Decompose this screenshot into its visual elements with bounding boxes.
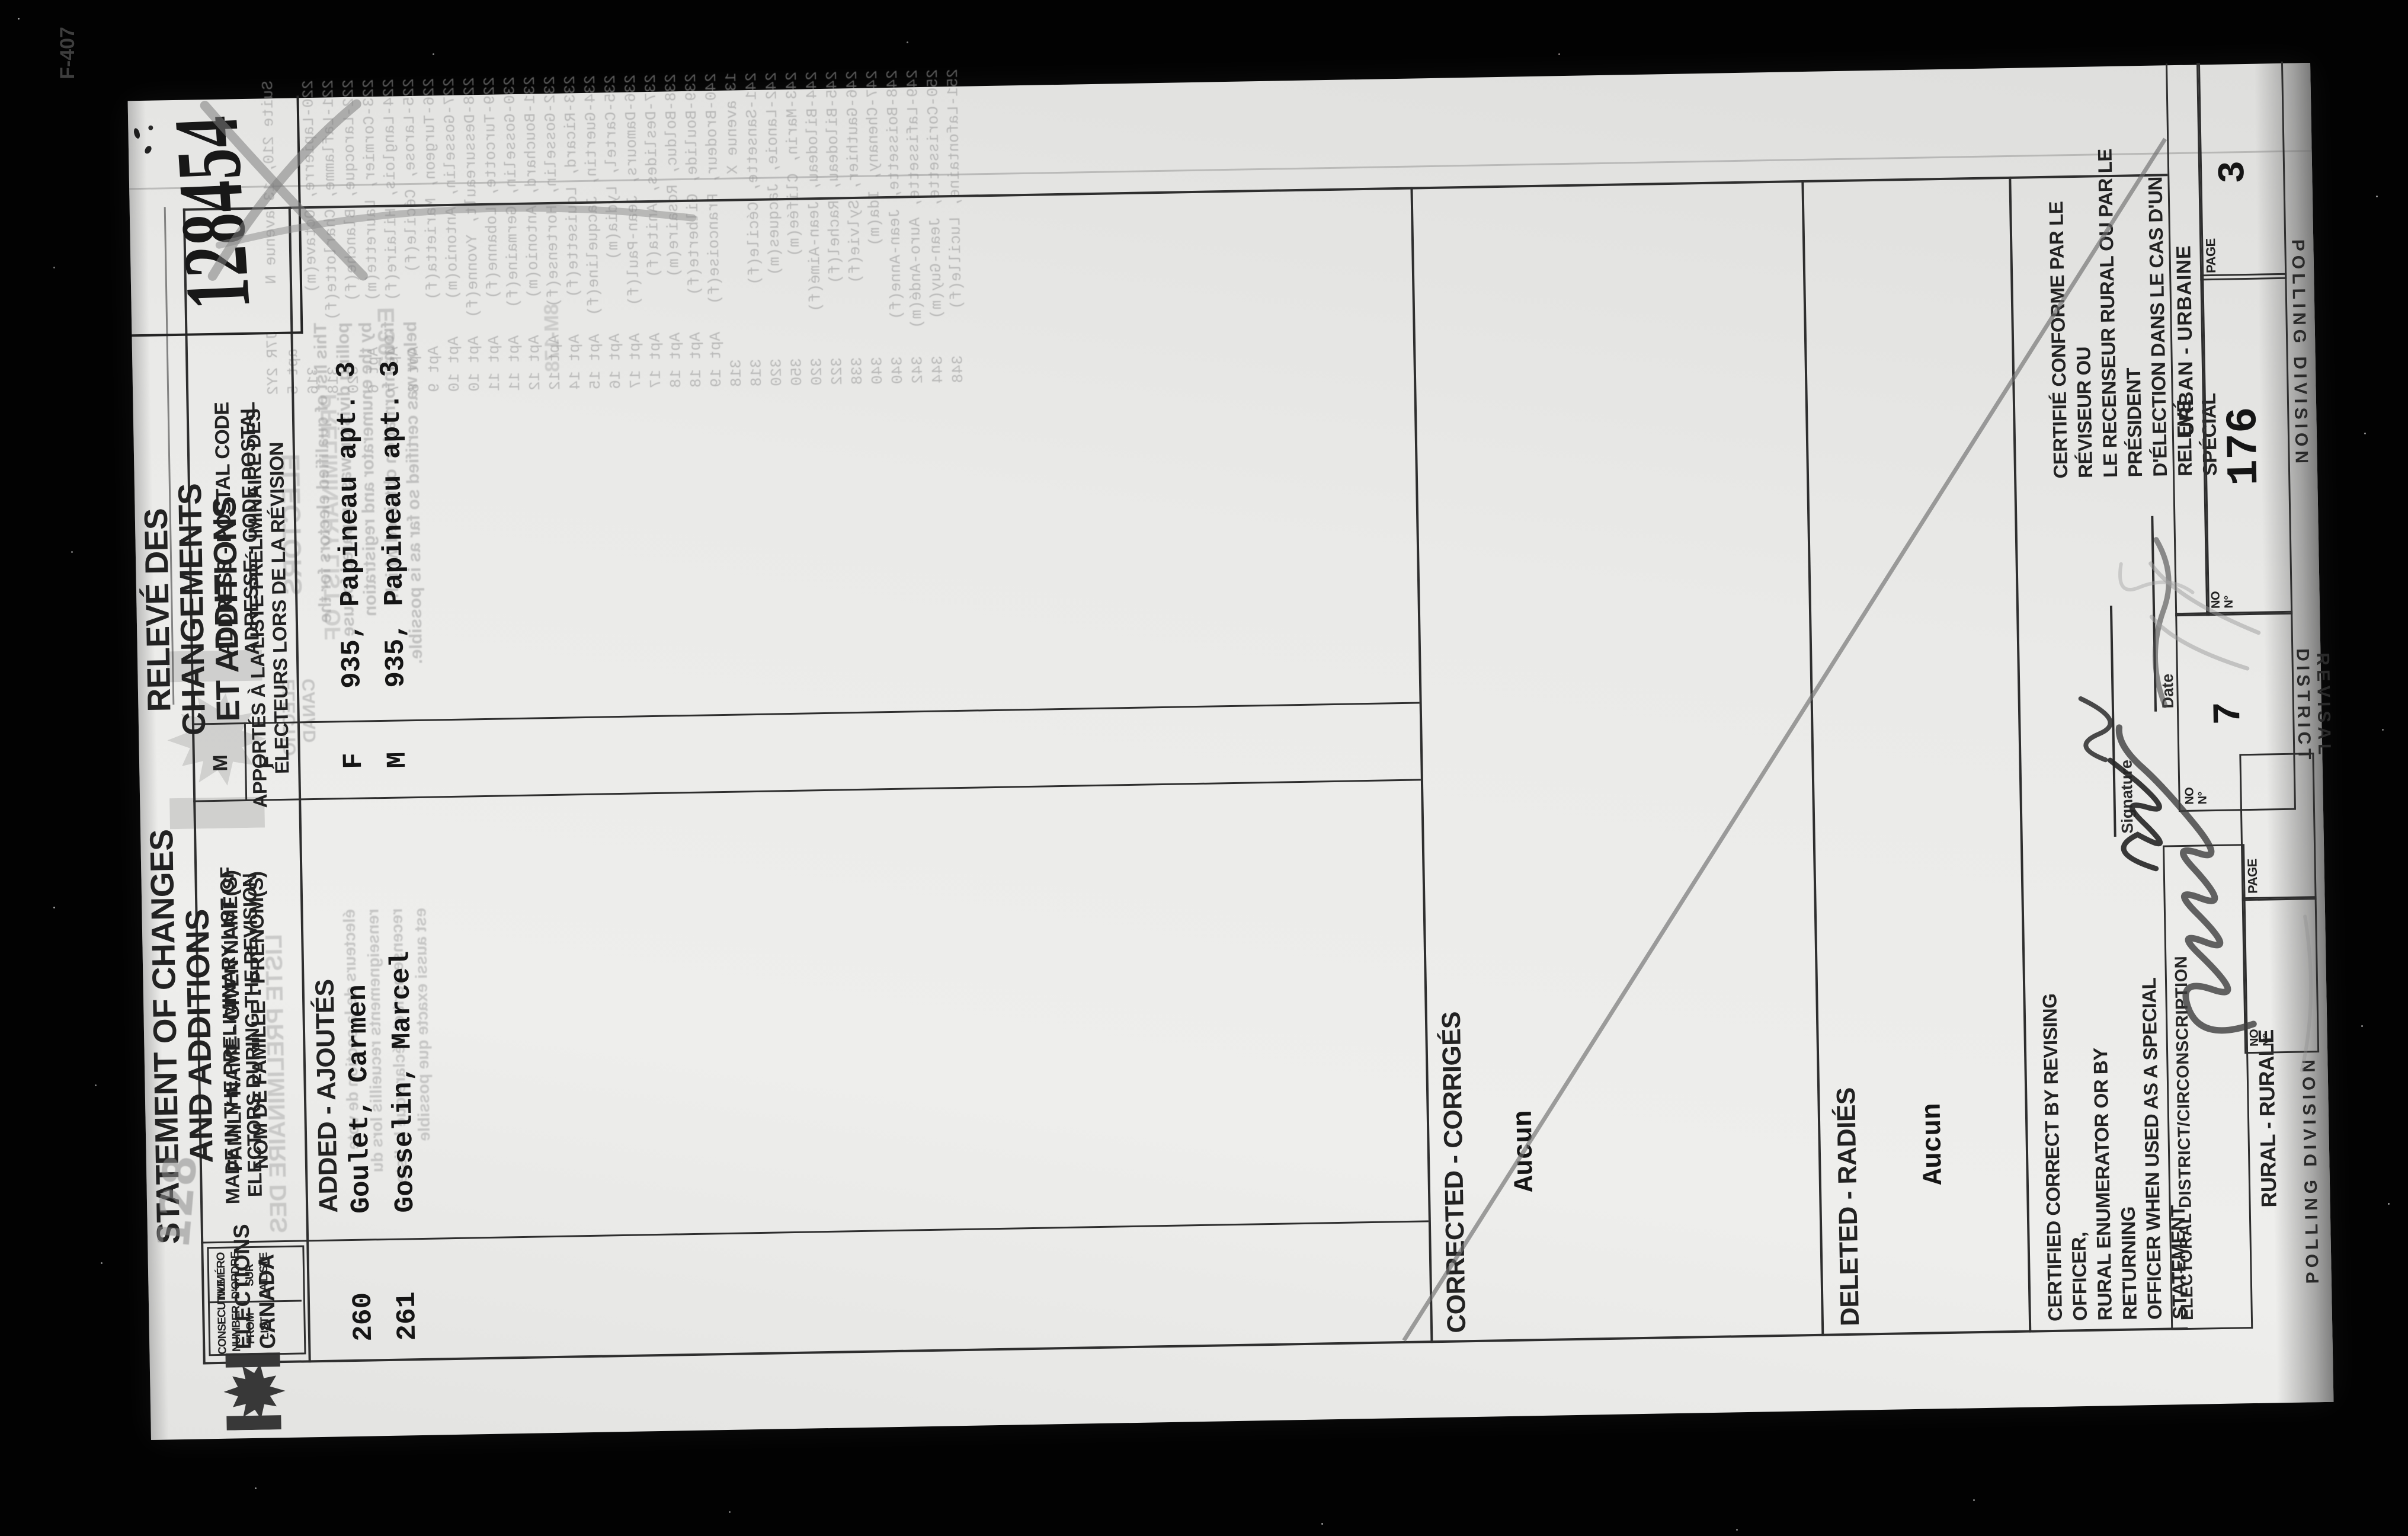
corrected-value: Aucun <box>1509 1110 1541 1192</box>
sex-header-m: M <box>209 724 233 802</box>
form-paper: LISTE PRÉLIMINAIRE DES ELECTORS PRELIMIN… <box>128 63 2334 1440</box>
serial-number-stamp: 128454 <box>153 124 271 312</box>
polling-division-label-left: POLLING DIVISION <box>2299 1055 2323 1284</box>
rural-page-label: PAGE <box>2244 859 2260 894</box>
section-added-label: ADDED - AJOUTÉS <box>310 979 344 1213</box>
date-line <box>2151 516 2157 712</box>
bleedthrough-name-list: Suite 210, 13 avenue N J7R 2Y2 apt 5220-… <box>197 69 968 396</box>
address-column-header: ADDRESS - POSTAL CODE ADRESSE - CODE POS… <box>208 339 267 719</box>
film-speckles <box>18 18 20 20</box>
rural-section-label: RURAL - RURALE <box>2253 1029 2281 1208</box>
elections-canada-flag-logo <box>219 1352 292 1431</box>
date-label: Date <box>2159 674 2178 709</box>
page-number: 3 <box>2211 64 2257 280</box>
certification-rule <box>2009 177 2031 1333</box>
pencil-number: 128 <box>146 1153 207 1251</box>
section-corrected-label: CORRECTED - CORRIGÉS <box>1437 1012 1472 1333</box>
row-261-number: 261 <box>392 1291 423 1341</box>
ink-specks <box>133 119 157 155</box>
row-261-sex: M <box>382 721 414 799</box>
revisal-district-number: 7 <box>2205 615 2253 811</box>
consecutive-header-en: CONSECUTIVE NUMBER FROM LIST <box>215 1303 273 1355</box>
signature-line <box>2110 606 2116 837</box>
corrected-rule <box>1410 187 1433 1343</box>
deleted-value: Aucun <box>1917 1103 1949 1185</box>
corner-form-number: F-407 <box>56 27 79 79</box>
row-260-number: 260 <box>348 1292 379 1342</box>
deleted-rule <box>1801 180 1824 1336</box>
table-border-left <box>203 1327 2188 1364</box>
sex-header-f: F <box>255 724 279 801</box>
section-deleted-label: DELETED - RADIÉS <box>1831 1087 1865 1327</box>
title-french-line1: RELEVÉ DES CHANGEMENTS <box>136 402 212 818</box>
signature-label: Signature <box>2117 760 2137 834</box>
row-260-sex: F <box>338 722 370 799</box>
rural-no-label: NO N° <box>2247 1029 2273 1047</box>
row-261-address: 935, Papineau apt. 3 <box>375 360 412 688</box>
row-260-name: Goulet, Carmen <box>342 984 377 1214</box>
revisal-district-label: REVISAL DISTRICT <box>2291 608 2335 804</box>
polling-division-number: 176 <box>2217 277 2272 615</box>
name-column-header: FAMILY NAME - GIVEN NAME(S) NOM DE FAMIL… <box>216 804 276 1237</box>
row-261-name: Gosselin, Marcel <box>386 951 421 1213</box>
consecutive-header-fr: NUMÉRO D'ORDRE SUR LA LISTE <box>214 1249 271 1301</box>
revisal-no-label: NO N° <box>2183 787 2209 805</box>
row-260-address: 935, Papineau apt. 3 <box>331 361 368 689</box>
scanned-document-photo: F-407 LISTE PRÉLIMINAIRE DES ELECTORS PR… <box>0 0 2408 1536</box>
